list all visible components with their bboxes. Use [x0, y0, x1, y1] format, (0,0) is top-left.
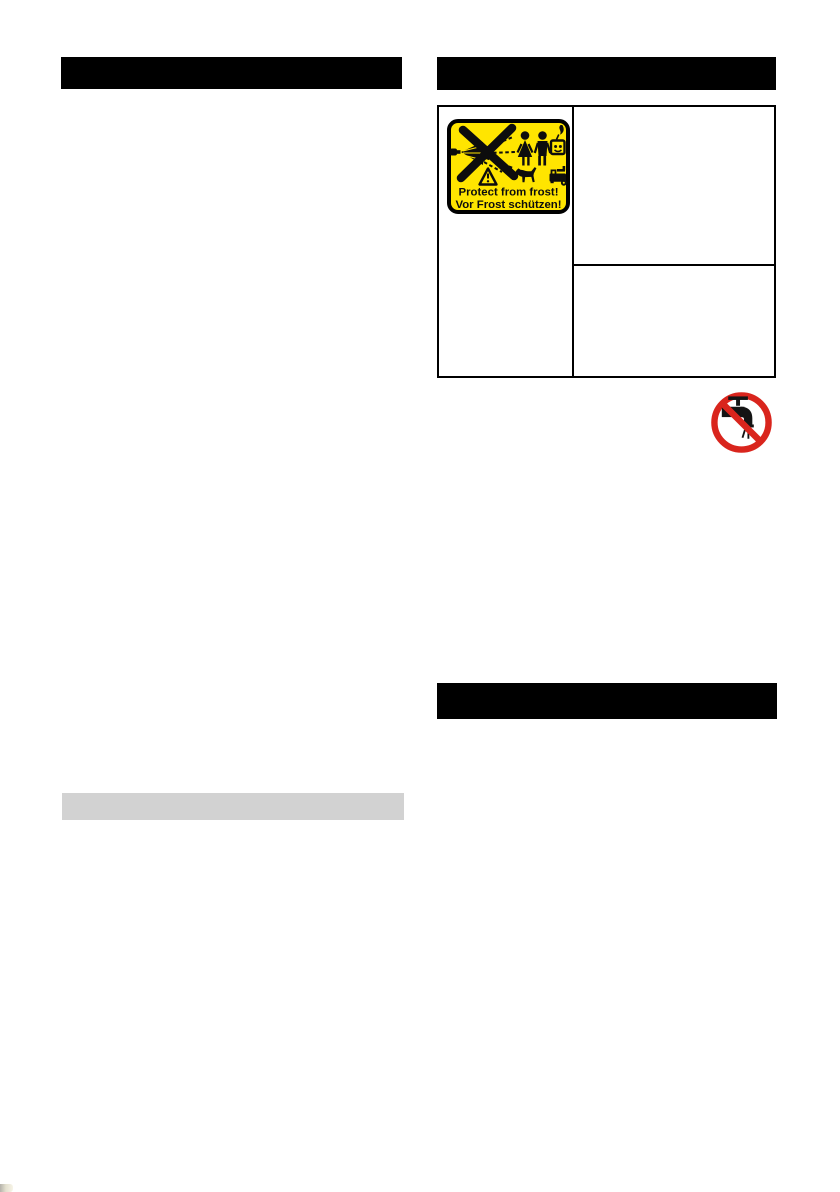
- sticker-text-line2: Vor Frost schützen!: [455, 199, 561, 211]
- no-tap-water-icon: [710, 391, 773, 454]
- right-lower-section-header-bar: [437, 683, 777, 719]
- left-section-header-bar: [61, 57, 402, 89]
- table-cell-right-top: [574, 107, 774, 264]
- print-smudge-artifact: [0, 1184, 13, 1192]
- table-cell-sticker: Protect from frost! Vor Frost schützen!: [439, 107, 572, 376]
- warning-table: Protect from frost! Vor Frost schützen!: [437, 105, 776, 378]
- table-cell-right-bottom: [574, 266, 774, 376]
- frost-warning-sticker: Protect from frost! Vor Frost schützen!: [447, 119, 570, 214]
- sticker-text-line1: Protect from frost!: [459, 187, 559, 199]
- right-section-header-bar: [437, 57, 776, 90]
- left-subsection-bar: [62, 793, 404, 820]
- manual-page: Protect from frost! Vor Frost schützen!: [0, 0, 840, 1192]
